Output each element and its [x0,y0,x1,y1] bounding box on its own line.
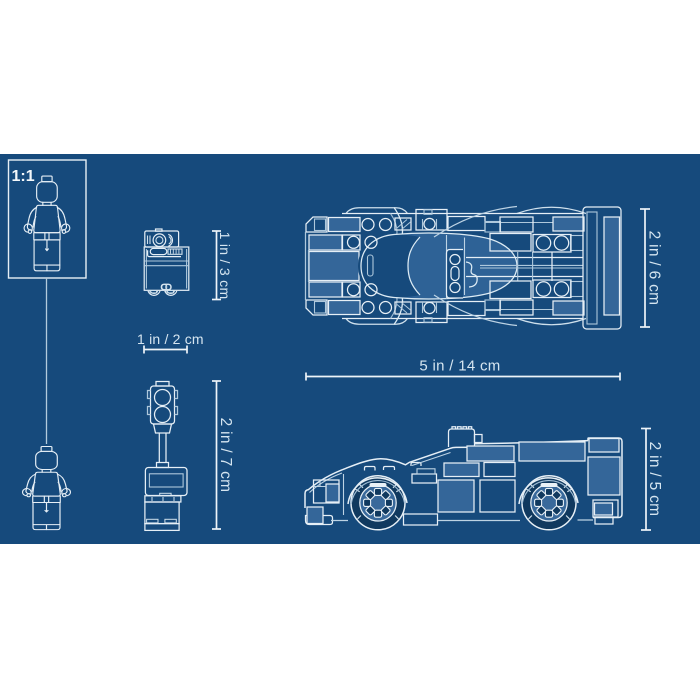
svg-text:2 in / 5 cm: 2 in / 5 cm [646,442,663,517]
svg-text:1:1: 1:1 [12,168,35,185]
svg-text:5 in / 14 cm: 5 in / 14 cm [419,358,500,375]
svg-text:2 in / 6 cm: 2 in / 6 cm [646,231,663,306]
svg-text:1 in / 2 cm: 1 in / 2 cm [137,331,204,347]
svg-text:2 in / 7 cm: 2 in / 7 cm [217,418,234,493]
svg-text:1 in / 3 cm: 1 in / 3 cm [217,232,233,300]
